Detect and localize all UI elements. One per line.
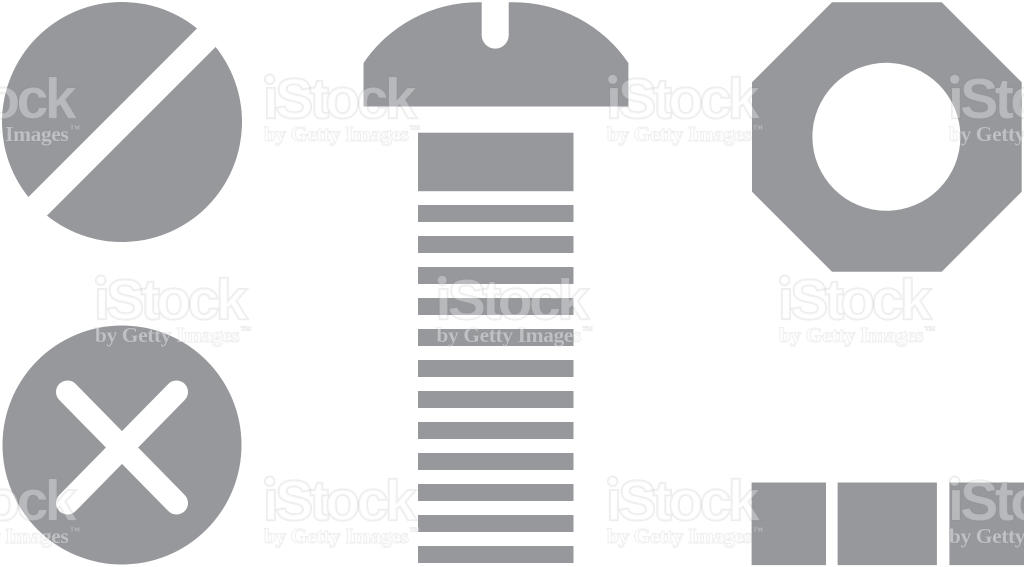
svg-text:by Getty Images TM: by Getty Images TM bbox=[949, 524, 1024, 548]
svg-text:by Getty Images TM: by Getty Images TM bbox=[0, 122, 80, 146]
svg-text:by Getty Images TM: by Getty Images TM bbox=[95, 323, 251, 347]
svg-text:by Getty Images TM: by Getty Images TM bbox=[436, 323, 592, 347]
svg-text:by Getty Images TM: by Getty Images TM bbox=[0, 524, 80, 548]
svg-text:by Getty Images TM: by Getty Images TM bbox=[607, 122, 763, 146]
svg-text:by Getty Images TM: by Getty Images TM bbox=[607, 524, 763, 548]
svg-text:by Getty Images TM: by Getty Images TM bbox=[264, 524, 420, 548]
svg-text:by Getty Images TM: by Getty Images TM bbox=[949, 122, 1024, 146]
svg-text:by Getty Images TM: by Getty Images TM bbox=[779, 323, 935, 347]
svg-text:by Getty Images TM: by Getty Images TM bbox=[264, 122, 420, 146]
